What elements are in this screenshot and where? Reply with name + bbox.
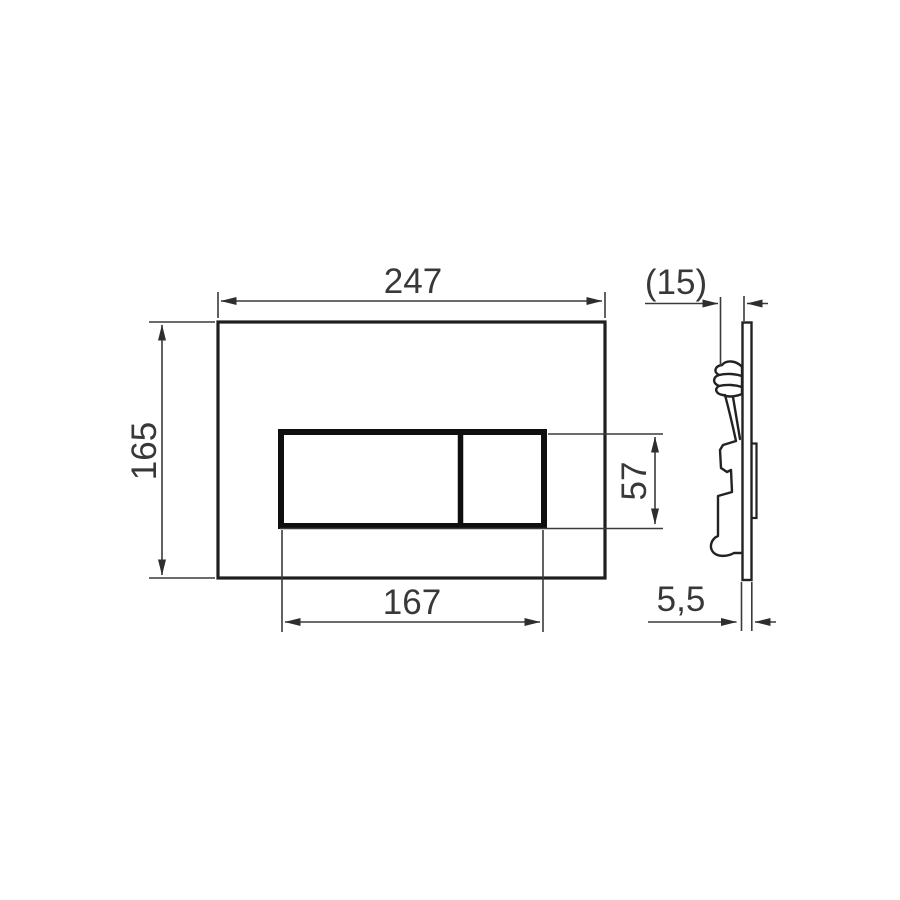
- plate-side-profile: [743, 323, 752, 581]
- mounting-depth-value: (15): [645, 263, 707, 302]
- technical-drawing-canvas: 247 165 57 167: [0, 0, 900, 900]
- button-height-value: 57: [615, 462, 654, 501]
- front-view: [218, 322, 605, 578]
- dimension-plate-height: 165: [125, 322, 215, 578]
- plate-thickness-value: 5,5: [657, 580, 706, 619]
- dimension-drawing: 247 165 57 167: [0, 0, 900, 900]
- dimension-plate-width: 247: [218, 262, 605, 318]
- side-view: [711, 323, 757, 581]
- plate-width-value: 247: [384, 262, 442, 301]
- plate-height-value: 165: [125, 422, 164, 480]
- dimension-plate-thickness: 5,5: [648, 580, 776, 631]
- button-panel: [281, 432, 544, 526]
- button-width-value: 167: [383, 583, 441, 622]
- mounting-clip-spring: [714, 361, 742, 396]
